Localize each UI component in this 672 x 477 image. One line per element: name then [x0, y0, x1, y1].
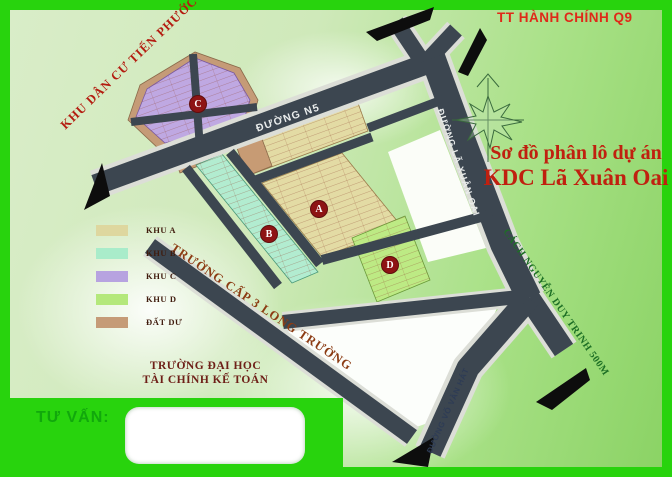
legend-label: KHU D — [146, 294, 177, 304]
poster: TT HÀNH CHÍNH Q9 KHU DÂN CƯ TIẾN PHƯỚC S… — [0, 0, 672, 477]
legend-label: KHU B — [146, 248, 176, 258]
university-line-2: TÀI CHÍNH KẾ TOÁN — [118, 374, 293, 388]
legend-swatch-dat-du — [96, 317, 128, 328]
legend-swatch-khu-b — [96, 248, 128, 259]
arrow-north-east — [458, 28, 487, 76]
landmark-tt-hanh-chinh: TT HÀNH CHÍNH Q9 — [497, 10, 633, 25]
zone-badge-b: B — [260, 225, 278, 243]
arrow-south-east — [536, 368, 590, 410]
legend-label: KHU C — [146, 271, 177, 281]
legend-item-dat-du: ĐẤT DƯ — [96, 316, 182, 328]
university-line-1: TRƯỜNG ĐẠI HỌC — [118, 360, 293, 374]
legend-swatch-khu-d — [96, 294, 128, 305]
legend-label: KHU A — [146, 225, 176, 235]
zone-badge-a: A — [310, 200, 328, 218]
legend-swatch-khu-a — [96, 225, 128, 236]
consultant-strip: TƯ VẤN: — [10, 398, 343, 467]
zone-badge-d: D — [381, 256, 399, 274]
legend-swatch-khu-c — [96, 271, 128, 282]
consultant-contact-box — [125, 407, 305, 464]
legend-item-khu-a: KHU A — [96, 224, 182, 236]
title-line-2: KDC Lã Xuân Oai — [480, 165, 672, 191]
consultant-label: TƯ VẤN: — [36, 409, 110, 427]
legend-item-khu-b: KHU B — [96, 247, 182, 259]
legend-item-khu-c: KHU C — [96, 270, 182, 282]
zone-badge-c: C — [189, 95, 207, 113]
legend: KHU A KHU B KHU C KHU D ĐẤT DƯ — [96, 224, 182, 339]
landmark-university: TRƯỜNG ĐẠI HỌC TÀI CHÍNH KẾ TOÁN — [118, 360, 293, 388]
legend-item-khu-d: KHU D — [96, 293, 182, 305]
page-title: Sơ đồ phân lô dự án KDC Lã Xuân Oai — [480, 142, 672, 191]
title-line-1: Sơ đồ phân lô dự án — [480, 142, 672, 165]
legend-label: ĐẤT DƯ — [146, 317, 182, 327]
